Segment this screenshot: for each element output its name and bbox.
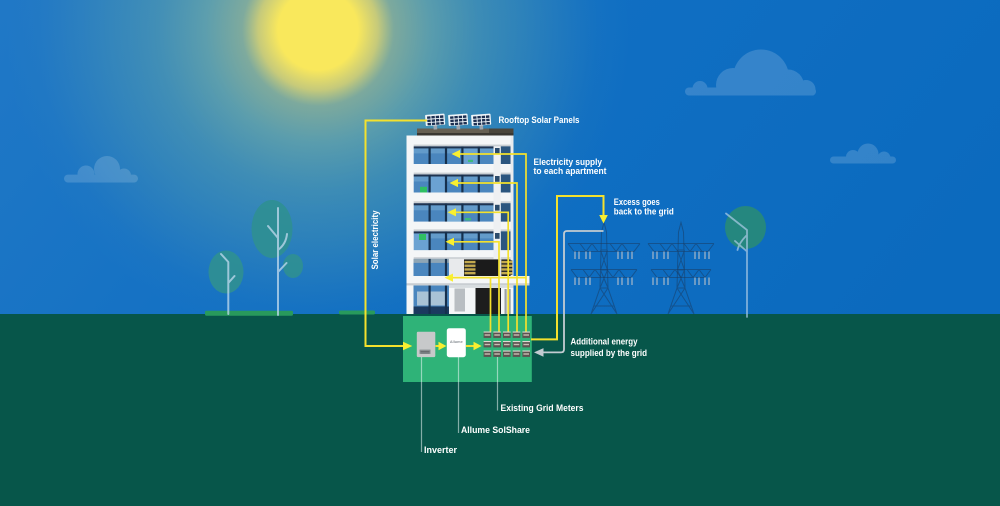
svg-text:Additional energy: Additional energy [571, 336, 638, 346]
svg-text:Allume SolShare: Allume SolShare [461, 425, 530, 435]
svg-text:Excess goes: Excess goes [614, 197, 660, 207]
svg-text:supplied by the grid: supplied by the grid [571, 348, 648, 358]
svg-text:Inverter: Inverter [424, 445, 457, 455]
svg-text:to each apartment: to each apartment [534, 166, 607, 176]
svg-text:back to the grid: back to the grid [614, 206, 674, 216]
svg-text:Rooftop Solar Panels: Rooftop Solar Panels [499, 115, 580, 125]
svg-text:Existing Grid Meters: Existing Grid Meters [501, 403, 584, 413]
svg-text:Allume: Allume [450, 340, 463, 344]
svg-text:Solar electricity: Solar electricity [370, 211, 380, 270]
